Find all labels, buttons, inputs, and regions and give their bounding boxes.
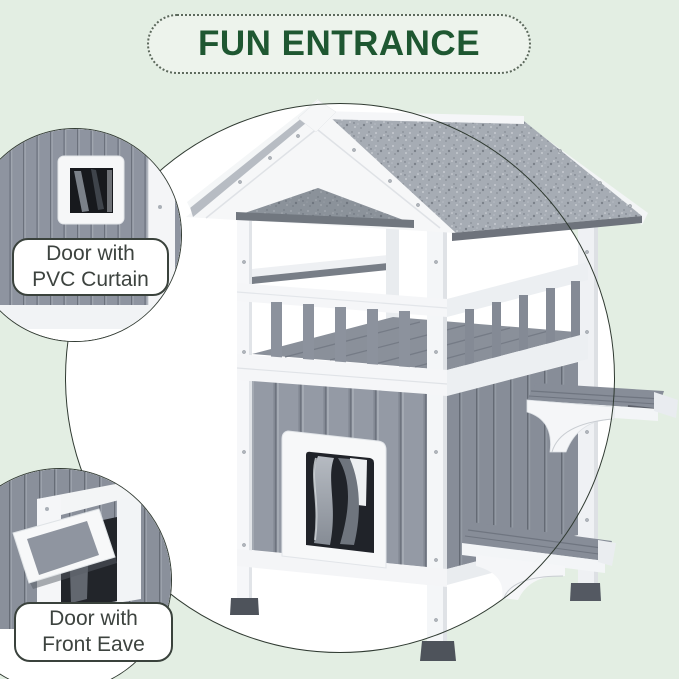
label-line: Door with: [46, 241, 135, 267]
callout-label-front-eave: Door with Front Eave: [14, 602, 173, 662]
label-line: Front Eave: [42, 632, 145, 658]
label-line: PVC Curtain: [32, 267, 149, 293]
leg-feet: [230, 583, 601, 661]
gable-roof: [186, 99, 648, 241]
label-line: Door with: [49, 606, 138, 632]
callout-label-pvc-curtain: Door with PVC Curtain: [12, 238, 169, 296]
door-with-pvc-curtain: [282, 431, 386, 568]
section-title-banner: FUN ENTRANCE: [147, 14, 531, 74]
page-background: Door with PVC Curtain Door with Front Ea…: [0, 0, 679, 679]
section-title: FUN ENTRANCE: [198, 24, 480, 64]
